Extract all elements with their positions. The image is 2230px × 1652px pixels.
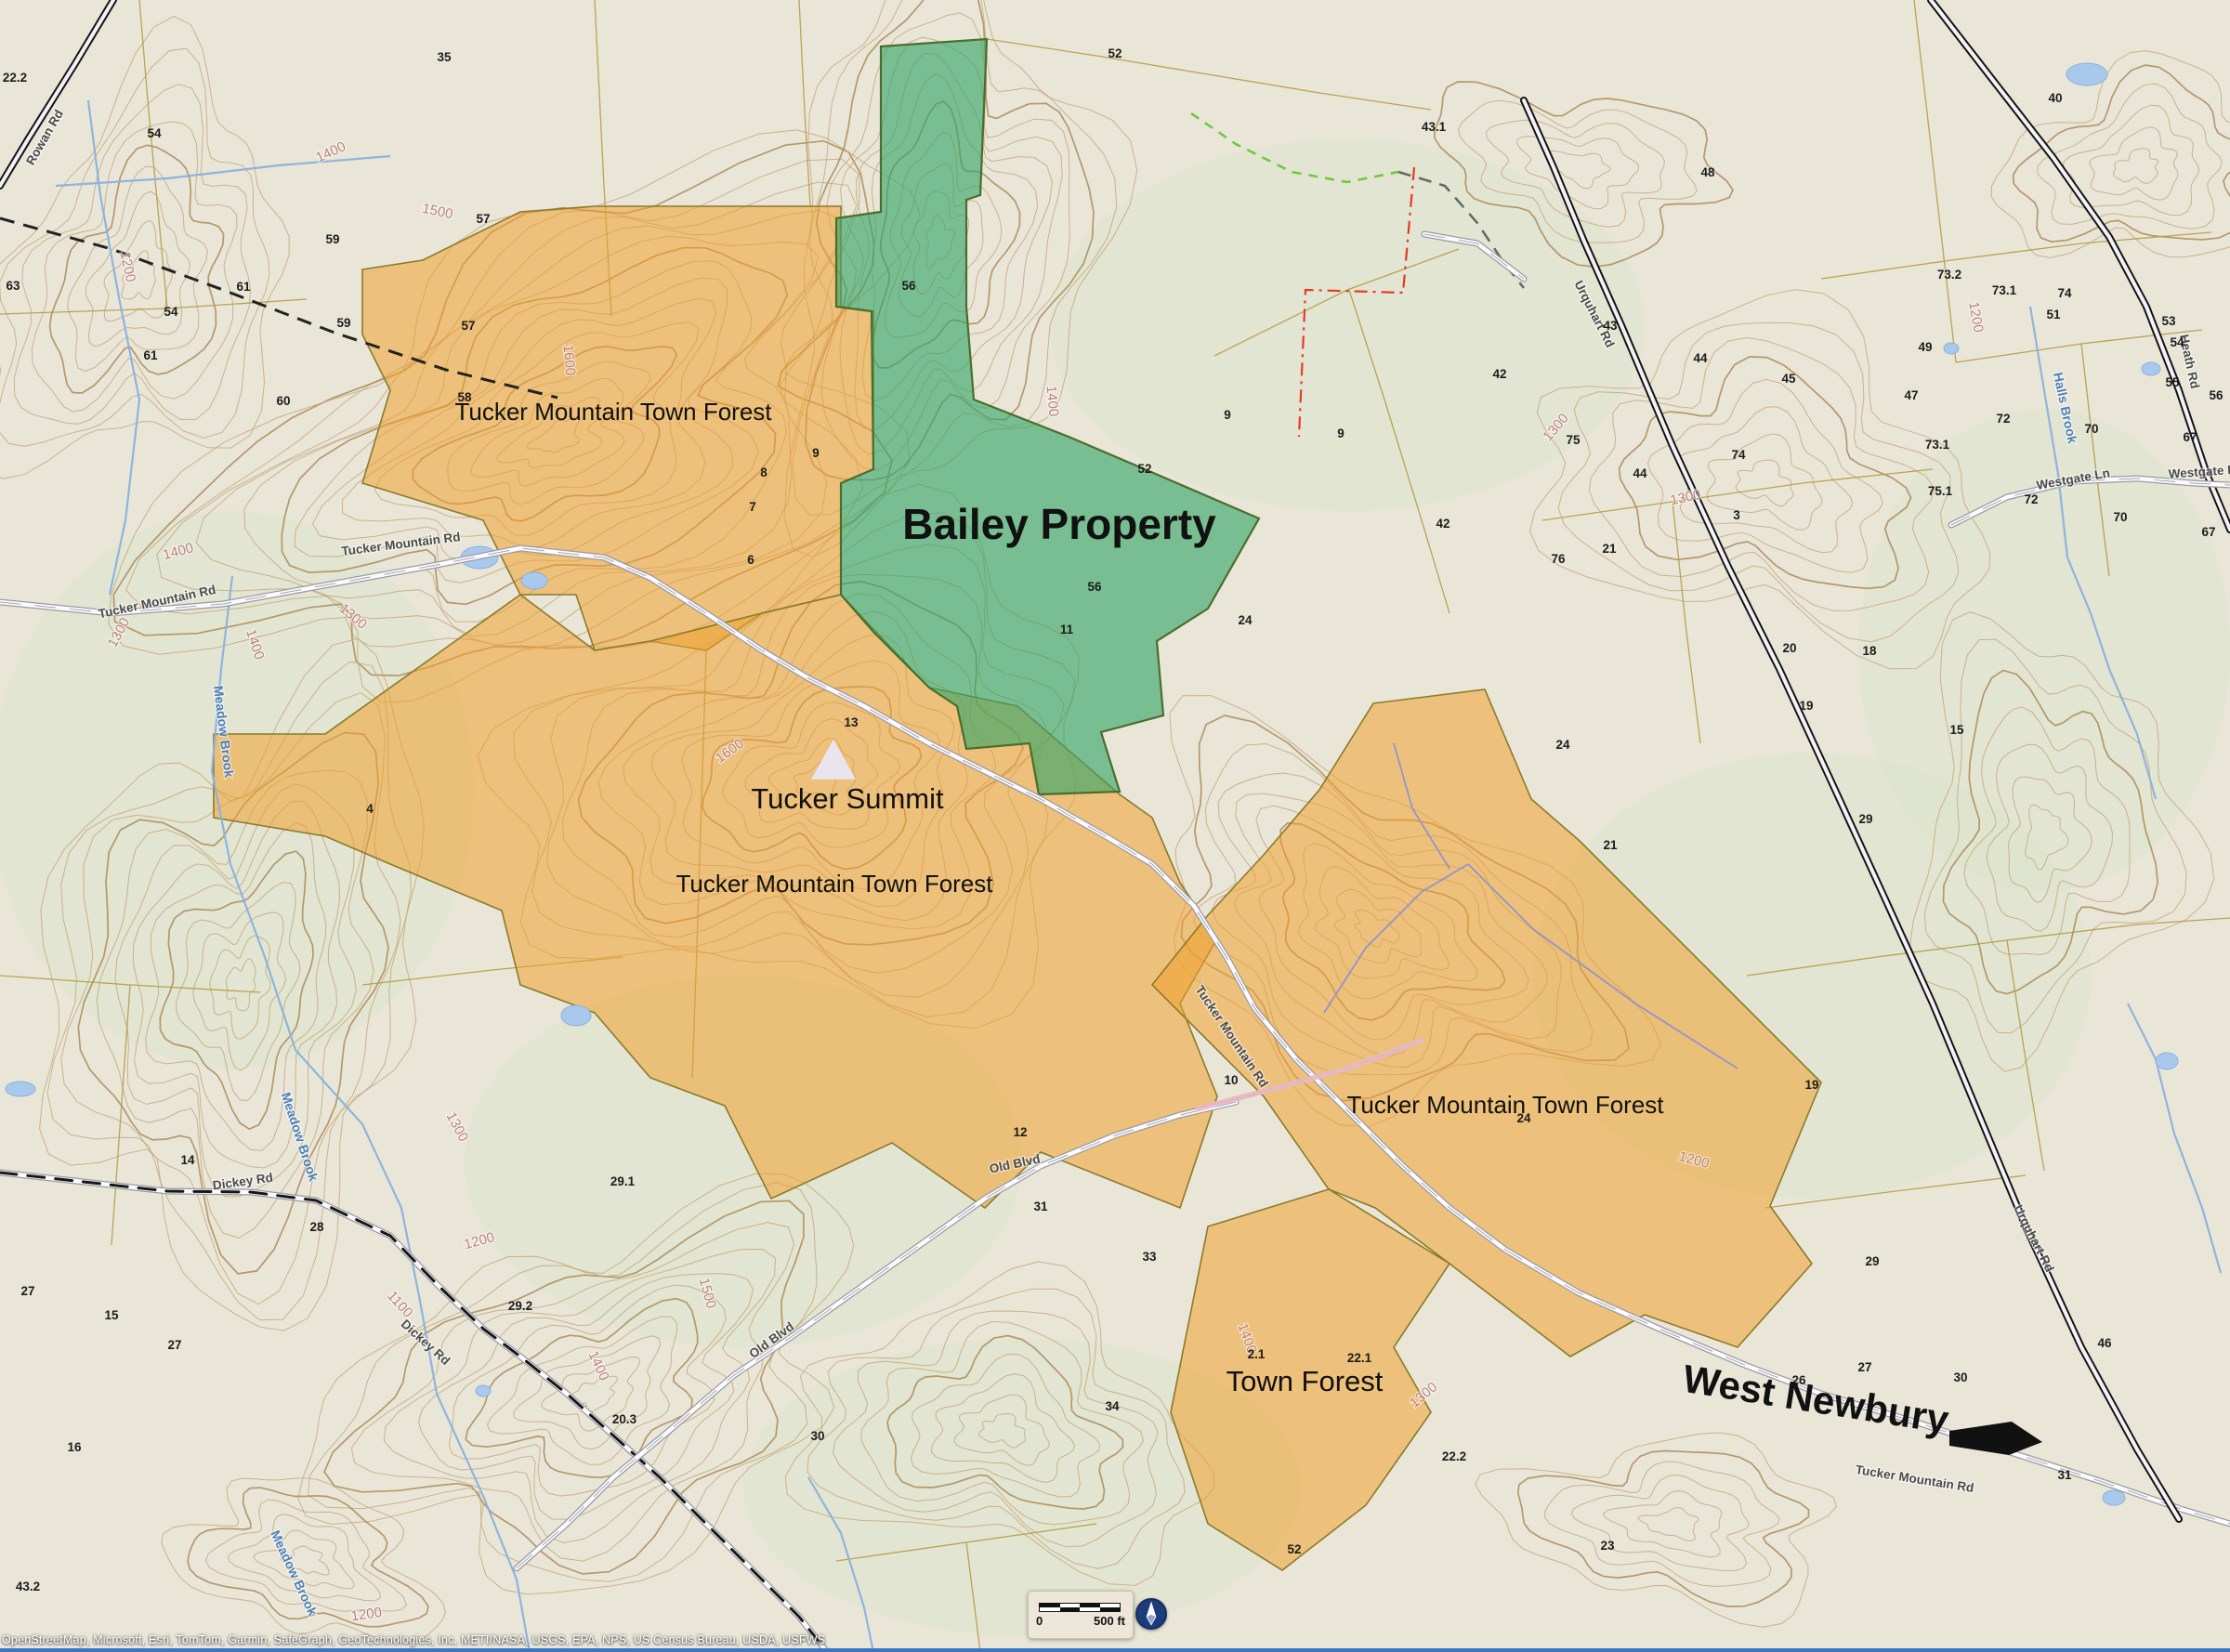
parcel-number: 31 bbox=[2057, 1468, 2072, 1482]
parcel-number: 76 bbox=[1551, 552, 1566, 566]
parcel-number: 9 bbox=[1337, 426, 1345, 440]
scale-max-label: 500 ft bbox=[1094, 1614, 1125, 1628]
parcel-number: 74 bbox=[2057, 286, 2072, 300]
parcel-number: 56 bbox=[901, 279, 916, 293]
pond bbox=[2103, 1490, 2125, 1505]
parcel-number: 24 bbox=[1555, 738, 1570, 752]
parcel-number: 9 bbox=[1224, 408, 1231, 422]
parcel-number: 3 bbox=[1733, 508, 1740, 522]
parcel-number: 20 bbox=[1782, 641, 1796, 655]
parcel-number: 43.2 bbox=[16, 1580, 40, 1593]
parcel-number: 73.2 bbox=[1937, 268, 1961, 282]
parcel-number: 8 bbox=[760, 465, 767, 479]
parcel-number: 75 bbox=[1566, 433, 1581, 447]
parcel-number: 19 bbox=[1804, 1078, 1818, 1092]
parcel-number: 40 bbox=[2048, 91, 2062, 105]
parcel-number: 12 bbox=[1013, 1125, 1027, 1139]
parcel-number: 52 bbox=[1287, 1542, 1301, 1556]
parcel-number: 59 bbox=[336, 316, 350, 330]
parcel-number: 61 bbox=[236, 280, 251, 294]
parcel-number: 16 bbox=[67, 1440, 82, 1454]
parcel-number: 48 bbox=[1700, 165, 1715, 179]
parcel-number: 35 bbox=[437, 50, 452, 64]
parcel-number: 6 bbox=[747, 553, 754, 567]
parcel-number: 7 bbox=[749, 500, 756, 514]
parcel-number: 60 bbox=[276, 394, 290, 408]
parcel-number: 44 bbox=[1693, 351, 1708, 365]
parcel-number: 52 bbox=[1108, 46, 1122, 60]
parcel-number: 45 bbox=[1781, 372, 1796, 386]
map-label: 1400 bbox=[1043, 385, 1062, 417]
parcel-number: 21 bbox=[1602, 542, 1617, 556]
parcel-number: 34 bbox=[1105, 1399, 1120, 1413]
parcel-number: 57 bbox=[476, 212, 490, 226]
parcel-number: 57 bbox=[461, 319, 475, 333]
parcel-number: 21 bbox=[1603, 838, 1618, 852]
pond bbox=[2066, 63, 2107, 85]
parcel-number: 2.1 bbox=[1248, 1347, 1266, 1361]
pond bbox=[2142, 362, 2160, 375]
parcel-number: 23 bbox=[1600, 1539, 1615, 1553]
parcel-number: 73.1 bbox=[1925, 438, 1950, 452]
parcel-number: 33 bbox=[1142, 1250, 1157, 1264]
pond bbox=[1944, 343, 1959, 354]
pond bbox=[561, 1005, 591, 1026]
topo-map-canvas[interactable]: 1400150012001600140013001300140016001400… bbox=[0, 0, 2230, 1652]
parcel-number: 46 bbox=[2097, 1336, 2112, 1350]
parcel-number: 29.2 bbox=[508, 1299, 532, 1313]
parcel-number: 52 bbox=[1137, 462, 1151, 476]
parcel-number: 30 bbox=[810, 1429, 824, 1443]
parcel-number: 54 bbox=[2170, 335, 2184, 349]
parcel-number: 70 bbox=[2084, 422, 2098, 436]
parcel-number: 49 bbox=[1918, 340, 1932, 354]
area-label: Tucker Mountain Town Forest bbox=[454, 398, 772, 426]
parcel-number: 29.1 bbox=[610, 1174, 636, 1188]
map-label: 1600 bbox=[560, 344, 579, 376]
parcel-number: 67 bbox=[2183, 430, 2197, 444]
scale-bar-graphic bbox=[1040, 1604, 1120, 1611]
parcel-number: 47 bbox=[1904, 388, 1918, 402]
parcel-number: 29 bbox=[1865, 1254, 1879, 1268]
parcel-number: 19 bbox=[1799, 699, 1813, 713]
parcel-number: 75.1 bbox=[1928, 484, 1953, 498]
map-viewport[interactable]: 1400150012001600140013001300140016001400… bbox=[0, 0, 2230, 1652]
parcel-number: 43 bbox=[1603, 319, 1618, 333]
parcel-number: 14 bbox=[180, 1153, 195, 1167]
parcel-number: 29 bbox=[1858, 812, 1872, 826]
parcel-number: 24 bbox=[1238, 613, 1253, 627]
parcel-number: 42 bbox=[1492, 367, 1506, 381]
parcel-number: 54 bbox=[164, 305, 178, 319]
parcel-number: 11 bbox=[1060, 623, 1074, 636]
parcel-number: 51 bbox=[2046, 308, 2061, 321]
scale-bar: 0 500 ft bbox=[1028, 1591, 1134, 1639]
parcel-number: 55 bbox=[2165, 375, 2180, 389]
parcel-number: 20.3 bbox=[612, 1412, 637, 1426]
parcel-number: 67 bbox=[2201, 525, 2215, 539]
area-label: Bailey Property bbox=[902, 500, 1216, 548]
parcel-number: 22.2 bbox=[1442, 1449, 1466, 1463]
parcel-number: 18 bbox=[1862, 644, 1877, 658]
parcel-number: 59 bbox=[325, 232, 339, 246]
pond bbox=[2156, 1053, 2178, 1069]
parcel-number: 72 bbox=[2024, 492, 2038, 506]
parcel-number: 72 bbox=[1996, 412, 2010, 426]
parcel-number: 56 bbox=[2209, 388, 2223, 402]
parcel-number: 15 bbox=[104, 1308, 119, 1322]
parcel-number: 9 bbox=[812, 446, 820, 460]
scale-zero-label: 0 bbox=[1036, 1614, 1043, 1628]
parcel-number: 28 bbox=[309, 1220, 324, 1234]
pond bbox=[476, 1385, 491, 1396]
parcel-number: 27 bbox=[167, 1338, 181, 1352]
parcel-number: 42 bbox=[1436, 517, 1449, 531]
parcel-number: 73.1 bbox=[1992, 283, 2017, 297]
north-arrow-icon bbox=[1139, 1602, 1163, 1626]
parcel-number: 70 bbox=[2113, 510, 2127, 524]
parcel-number: 22.1 bbox=[1347, 1351, 1372, 1365]
pond bbox=[521, 572, 547, 589]
parcel-number: 30 bbox=[1953, 1370, 1967, 1384]
map-attribution: OpenStreetMap, Microsoft, Esri, TomTom, … bbox=[2, 1633, 825, 1646]
parcel-number: 61 bbox=[143, 348, 158, 362]
area-label: Tucker Mountain Town Forest bbox=[1346, 1091, 1664, 1119]
parcel-number: 56 bbox=[1087, 580, 1102, 594]
parcel-number: 15 bbox=[1949, 723, 1964, 737]
parcel-number: 27 bbox=[20, 1284, 34, 1298]
parcel-number: 53 bbox=[2161, 314, 2176, 328]
parcel-number: 13 bbox=[844, 715, 859, 729]
area-label: Tucker Summit bbox=[751, 782, 944, 815]
parcel-number: 22.2 bbox=[3, 71, 27, 85]
parcel-number: 4 bbox=[366, 802, 374, 816]
compass-button[interactable] bbox=[1135, 1598, 1167, 1630]
area-label: Town Forest bbox=[1226, 1365, 1384, 1397]
parcel-number: 74 bbox=[1731, 448, 1746, 462]
pond bbox=[6, 1082, 35, 1096]
bottom-accent-bar bbox=[0, 1648, 2230, 1652]
parcel-number: 31 bbox=[1033, 1200, 1048, 1213]
parcel-number: 10 bbox=[1224, 1073, 1238, 1087]
parcel-number: 63 bbox=[6, 279, 20, 293]
parcel-number: 54 bbox=[147, 126, 162, 140]
parcel-number: 43.1 bbox=[1422, 120, 1447, 134]
parcel-number: 27 bbox=[1857, 1360, 1871, 1374]
parcel-number: 44 bbox=[1633, 466, 1647, 480]
area-label: Tucker Mountain Town Forest bbox=[676, 870, 993, 898]
